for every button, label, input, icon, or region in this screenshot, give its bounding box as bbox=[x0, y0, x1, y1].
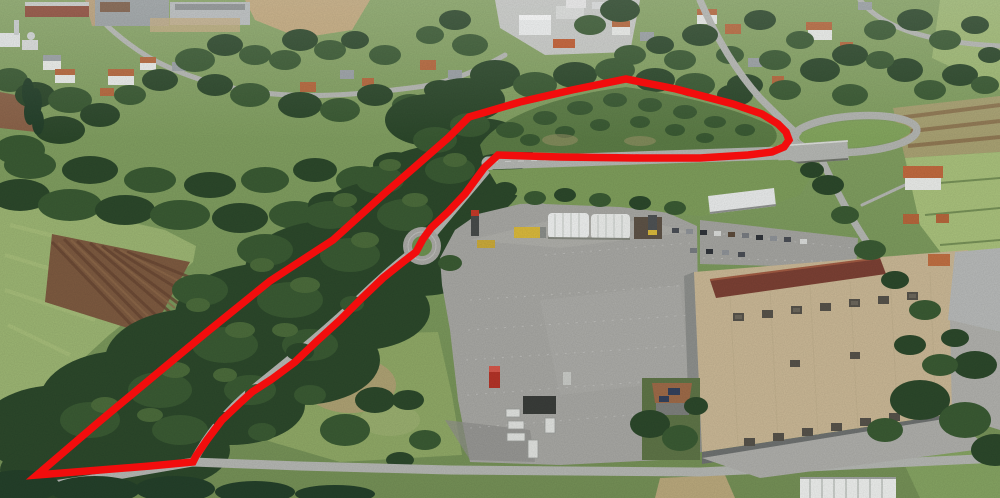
aerial-scene bbox=[0, 0, 1000, 498]
aerial-screenshot bbox=[0, 0, 1000, 498]
photo-grain bbox=[0, 0, 1000, 498]
